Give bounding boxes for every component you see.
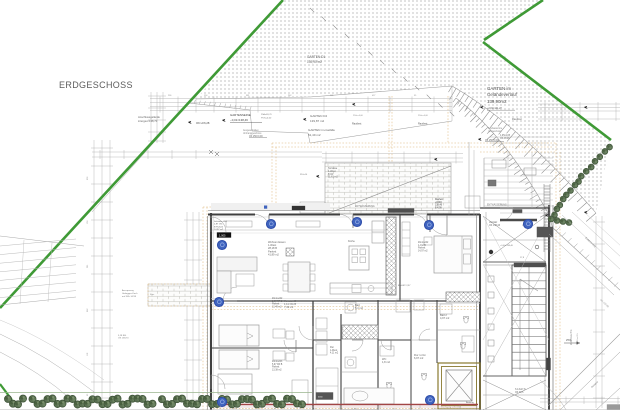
svg-text:254x+4,00: 254x+4,00: [353, 115, 364, 117]
svg-text:ERDGESCHOSS: ERDGESCHOSS: [59, 80, 133, 90]
svg-text:5,4 m2: 5,4 m2: [355, 306, 363, 310]
svg-text:4,11 m2: 4,11 m2: [330, 353, 339, 355]
svg-text:GARTEN D1: GARTEN D1: [307, 55, 325, 59]
svg-text:Küche: Küche: [348, 240, 355, 243]
svg-text:Anschlussgelände: Anschlussgelände: [138, 115, 160, 119]
svg-text:310x14: 310x14: [300, 174, 308, 176]
svg-text:Flur: Flur: [330, 346, 334, 349]
svg-text:Ausbaulerstre: Ausbaulerstre: [488, 127, 503, 130]
svg-text:OK H=6,28: OK H=6,28: [196, 121, 210, 125]
svg-text:OK 250=0,00: OK 250=0,00: [485, 140, 499, 142]
svg-text:B 4,99: B 4,99: [435, 207, 442, 209]
svg-text:25A=69,70: 25A=69,70: [261, 113, 272, 116]
svg-text:Parkett: Parkett: [272, 303, 280, 306]
svg-text:Geländeverlauf: Geländeverlauf: [487, 92, 518, 97]
svg-text:1-West: 1-West: [330, 349, 338, 352]
svg-text:2,97 OG: 2,97 OG: [214, 224, 223, 226]
svg-text:+2,81=141,27: +2,81=141,27: [487, 107, 502, 110]
svg-text:Parkett: Parkett: [272, 366, 280, 369]
svg-text:13,49 m2: 13,49 m2: [272, 306, 282, 308]
svg-text:Bestzug: Bestzug: [466, 401, 474, 404]
svg-text:intergeol 138,70: intergeol 138,70: [138, 119, 158, 123]
svg-text:139,90 m2: 139,90 m2: [307, 60, 322, 64]
svg-text:5,97 RF B: 5,97 RF B: [272, 364, 283, 366]
svg-text:mit 355+14/18: mit 355+14/18: [122, 295, 137, 298]
svg-text:1,05x1,05: 1,05x1,05: [500, 135, 511, 137]
svg-text:Umlegges-Fach: Umlegges-Fach: [122, 293, 138, 295]
svg-text:Aussparung: Aussparung: [122, 289, 134, 292]
svg-text:13,38 m2: 13,38 m2: [272, 369, 282, 371]
svg-text:−0,01=138,46: −0,01=138,46: [230, 118, 248, 122]
svg-text:Umgeschoss: Umgeschoss: [488, 131, 502, 133]
svg-text:ENTWÄSSERUNG: ENTWÄSSERUNG: [487, 204, 507, 207]
svg-text:1-Ost B: 1-Ost B: [418, 244, 426, 247]
svg-text:7,49 m2: 7,49 m2: [284, 305, 294, 309]
svg-text:Zimmer02: Zimmer02: [272, 297, 283, 300]
svg-text:138,46: 138,46: [435, 205, 443, 207]
svg-text:OK 250=0,00: OK 250=0,00: [249, 136, 263, 138]
svg-text:+0,00=138,46: +0,00=138,46: [500, 245, 514, 247]
svg-text:OK-Profil: OK-Profil: [500, 137, 510, 140]
svg-text:GARTEN im-Gefälle: GARTEN im-Gefälle: [308, 128, 335, 132]
svg-text:Rautfest: Rautfest: [418, 123, 428, 126]
svg-text:5,97 RF B: 5,97 RF B: [272, 301, 283, 303]
svg-text:41,89 m2: 41,89 m2: [268, 252, 279, 256]
svg-text:Bad WC 2,97: Bad WC 2,97: [398, 285, 411, 287]
svg-text:POS=0,60: POS=0,60: [261, 118, 272, 120]
svg-text:4,97 m2: 4,97 m2: [440, 316, 450, 320]
svg-text:OK 138,46: OK 138,46: [489, 225, 501, 227]
svg-text:+0,00=: +0,00=: [435, 202, 443, 204]
svg-text:B Parkett: B Parkett: [214, 225, 223, 228]
svg-text:Rautfest: Rautfest: [352, 123, 362, 126]
svg-text:OK 138,70: OK 138,70: [118, 338, 129, 340]
svg-text:14,97 m2: 14,97 m2: [418, 250, 428, 252]
svg-text:Zimmer03: Zimmer03: [272, 360, 283, 363]
svg-text:Zufahrt zur TG: Zufahrt zur TG: [570, 329, 573, 345]
svg-text:51,49 m2: 51,49 m2: [308, 133, 321, 137]
svg-text:GARTEN im: GARTEN im: [487, 86, 511, 91]
svg-text:Umhanggeschoss: Umhanggeschoss: [243, 133, 262, 135]
svg-text:11,61 m2: 11,61 m2: [328, 176, 338, 179]
svg-text:Rautfest: Rautfest: [512, 117, 522, 121]
svg-text:S 13x17,8: S 13x17,8: [515, 389, 526, 391]
svg-text:5,18 RG: 5,18 RG: [118, 335, 126, 337]
svg-text:254x+4,00: 254x+4,00: [418, 115, 429, 117]
svg-text:Schlafen WH: Schlafen WH: [214, 221, 227, 223]
svg-text:1,005: 1,005: [219, 234, 226, 238]
svg-text:139,90m2: 139,90m2: [487, 99, 507, 104]
svg-text:Parkett: Parkett: [418, 247, 426, 250]
svg-text:Zimmer02: Zimmer02: [418, 241, 429, 244]
svg-text:Raufest: Raufest: [435, 198, 443, 201]
svg-text:GARTEN D2: GARTEN D2: [310, 114, 327, 118]
svg-text:139,87 m2: 139,87 m2: [310, 119, 325, 123]
svg-text:Vorplatz: Vorplatz: [489, 221, 498, 224]
svg-text:6,97 m2: 6,97 m2: [414, 356, 424, 360]
svg-text:Ausgeschnitten: Ausgeschnitten: [243, 129, 259, 132]
svg-text:1,8 m2: 1,8 m2: [382, 360, 390, 364]
svg-text:OK 30,5: OK 30,5: [515, 392, 524, 394]
svg-text:ENTWÄSSERUNG: ENTWÄSSERUNG: [355, 205, 375, 208]
svg-text:GARTENSEINE: GARTENSEINE: [230, 113, 251, 117]
